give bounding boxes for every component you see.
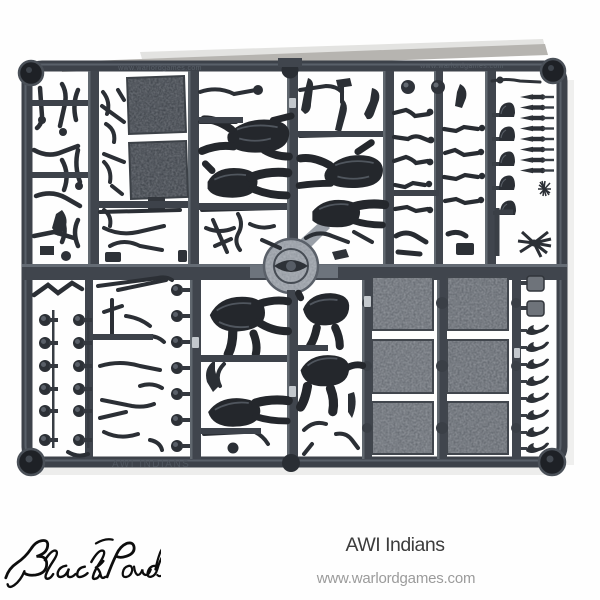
svg-text:AWI INDIANS: AWI INDIANS [112,459,190,470]
svg-text:www.warlordgames.com: www.warlordgames.com [117,65,202,72]
svg-text:www.warlordgames.com: www.warlordgames.com [419,63,504,70]
